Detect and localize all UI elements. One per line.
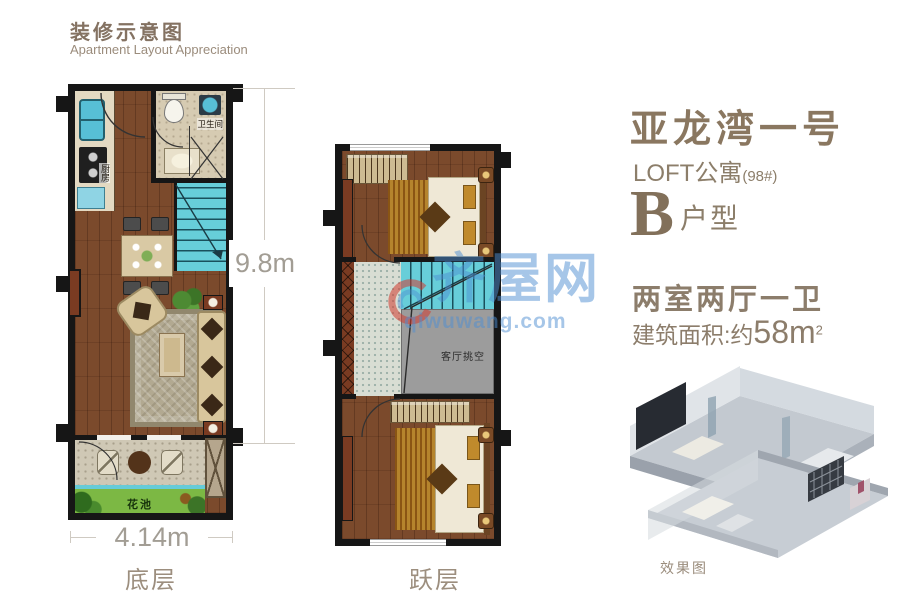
layout-sheet: 装修示意图 Apartment Layout Appreciation 厨房 卫… [0, 0, 900, 600]
project-name: 亚龙湾一号 [630, 98, 845, 153]
page-title: 装修示意图 [70, 16, 185, 45]
rooms-summary: 两室两厅一卫 [632, 276, 824, 318]
wall-stub [501, 152, 511, 168]
wall-stub [323, 340, 335, 356]
area-value: 58 [753, 314, 789, 350]
wall-stub [56, 96, 68, 112]
ground-floor-plan: 厨房 卫生间 [68, 84, 233, 520]
unit-type: B 户型 [630, 184, 740, 243]
building-area: 建筑面积:约58m2 [632, 314, 823, 351]
dimension-tick [232, 531, 233, 543]
dimension-tick [233, 88, 295, 89]
wall-stub [233, 84, 243, 102]
unit-label: 户型 [680, 197, 740, 237]
window [350, 144, 430, 151]
apartment-3d-render [612, 360, 888, 560]
wall-stub [501, 430, 511, 446]
wall-stub [56, 424, 68, 442]
wall-stub [323, 210, 335, 226]
dimension-tick [233, 443, 295, 444]
area-unit: m [789, 314, 816, 350]
area-exponent: 2 [816, 322, 823, 337]
page-subtitle: Apartment Layout Appreciation [70, 42, 248, 57]
window [370, 539, 446, 546]
building-number: (98#) [742, 168, 777, 185]
unit-letter: B [630, 184, 674, 243]
upper-floor-caption: 跃层 [352, 560, 518, 595]
area-prefix: 建筑面积:约 [632, 322, 753, 348]
upper-floor-plan: 客厅挑空 [335, 144, 501, 546]
ground-plan-linework [75, 91, 226, 513]
width-dimension-value: 4.14m [96, 522, 208, 553]
wall-stub [56, 276, 68, 292]
render-caption: 效果图 [660, 558, 708, 578]
dimension-tick [70, 531, 71, 543]
ground-floor-caption: 底层 [68, 560, 234, 595]
depth-dimension-value: 9.8m [229, 240, 301, 287]
upper-plan-linework [342, 151, 494, 539]
